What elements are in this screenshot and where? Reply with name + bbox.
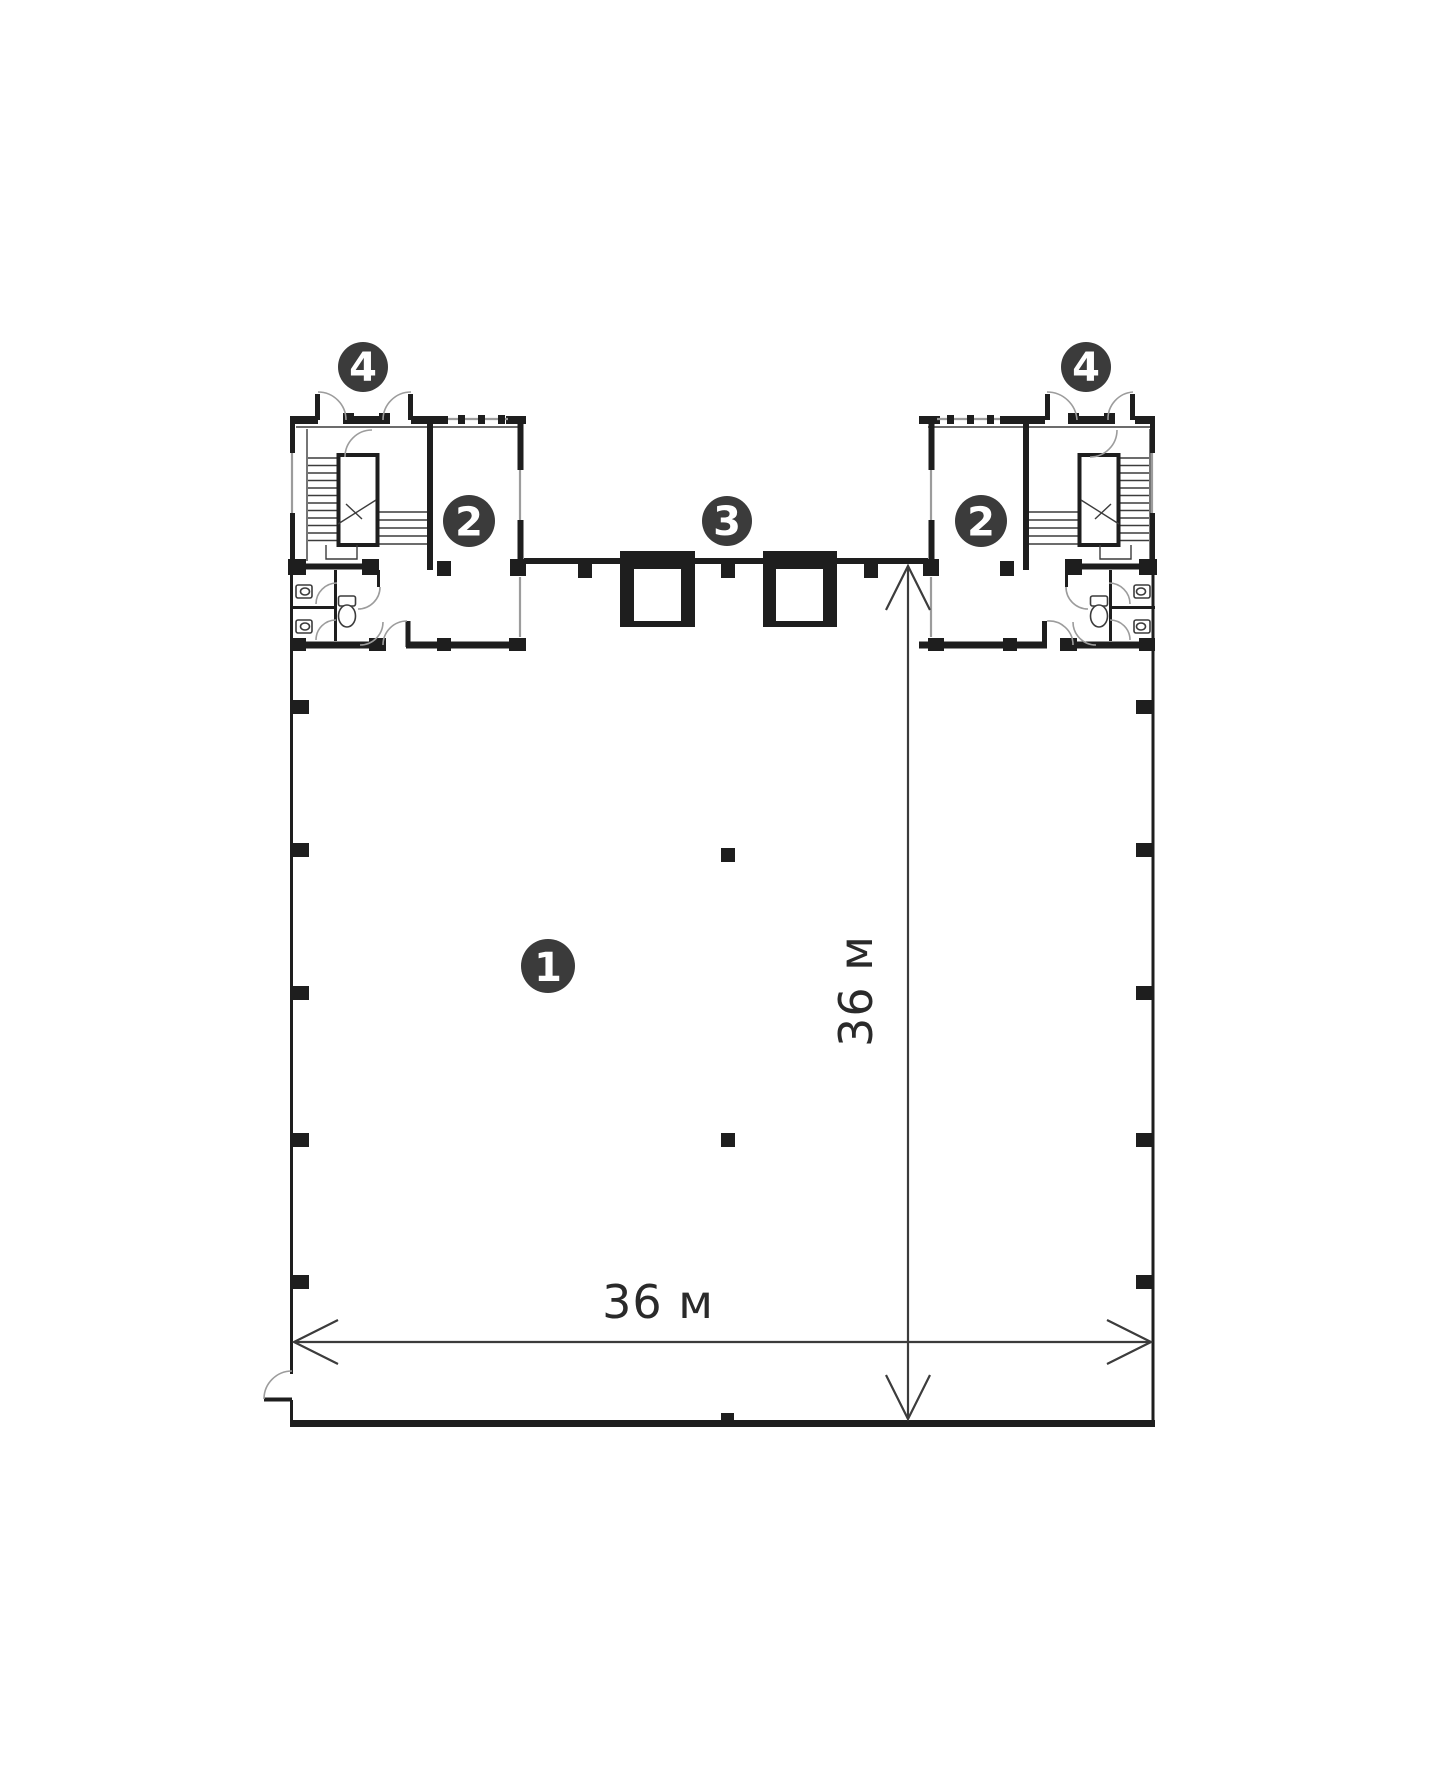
stair-door-swing-arc [345, 430, 372, 457]
room-badge-elevators: 3 [702, 496, 752, 546]
wall-column [1136, 1275, 1152, 1289]
wall-column [721, 563, 735, 578]
entry-door-swing-arc [318, 392, 411, 420]
room-badge-right-stair-number: 4 [1072, 345, 1100, 391]
sink-bowl [301, 588, 310, 595]
wall-column [293, 843, 309, 857]
right-stair-core [919, 392, 1157, 651]
room-badge-right-office-number: 2 [967, 499, 995, 545]
wall-column [509, 638, 526, 651]
interior-column [721, 848, 735, 862]
window-mullion [458, 415, 465, 424]
dimension-annotations: 36 м36 м [294, 566, 1151, 1419]
floor-plan-page: 36 м36 м 122344 [0, 0, 1440, 1776]
door-post [1104, 413, 1115, 424]
side-entry-door-swing-arc [264, 1371, 292, 1399]
room-badge-left-stair-number: 4 [349, 345, 377, 391]
dim-width-label: 36 м [602, 1275, 714, 1329]
wall-column [362, 559, 379, 575]
wall-column [1136, 1133, 1152, 1147]
dim-height-label: 36 м [829, 935, 883, 1047]
wall-column [293, 986, 309, 1000]
room-badge-left-office: 2 [443, 495, 495, 547]
wall-column [293, 700, 309, 714]
stair-treads [1119, 458, 1149, 541]
stair-treads-return [1029, 512, 1080, 544]
room-badge-right-office: 2 [955, 495, 1007, 547]
wall-column [578, 563, 592, 578]
room-badge-left-stair: 4 [338, 342, 388, 392]
sink-bowl [1137, 588, 1146, 595]
wall-column [1136, 700, 1152, 714]
toilet-bowl [339, 605, 356, 627]
sink-bowl [301, 623, 310, 630]
wall-column [1136, 843, 1152, 857]
dim-width: 36 м [294, 1275, 1151, 1364]
wall-column [293, 1133, 309, 1147]
window-mullion [987, 415, 994, 424]
wall-column [437, 638, 451, 651]
entry-door-swing-arc [1047, 392, 1133, 420]
elevator-bank [524, 551, 928, 627]
room-column [1000, 561, 1014, 576]
wall-column [928, 638, 944, 651]
stair-landing [1100, 545, 1131, 559]
door-post [343, 413, 354, 424]
window-mullion [967, 415, 974, 424]
wall-column [1060, 638, 1077, 651]
wall-column [864, 563, 878, 578]
room-number-badges: 122344 [338, 342, 1111, 993]
room-column [437, 561, 451, 576]
wall-corner-column [510, 559, 526, 576]
wall-column [721, 1413, 734, 1421]
room-badge-right-stair: 4 [1061, 342, 1111, 392]
wall-column [1136, 986, 1152, 1000]
room-badge-hall-number: 1 [534, 945, 562, 991]
left-stairwell [288, 424, 430, 575]
wall-column [293, 1275, 309, 1289]
sink-bowl [1137, 623, 1146, 630]
right-stairwell [1026, 424, 1157, 575]
stair-void [339, 455, 378, 545]
left-wc-area [290, 570, 380, 641]
hall-door-swing-arc [360, 621, 407, 645]
stair-door-swing-arc [1090, 430, 1117, 457]
stair-treads-return [377, 512, 428, 544]
window-mullion [947, 415, 954, 424]
room-badge-elevators-number: 3 [713, 499, 741, 545]
elevator-cab [776, 569, 823, 621]
stair-void [1080, 455, 1119, 545]
stair-landing [326, 545, 357, 559]
floor-plan: 36 м36 м 122344 [0, 0, 1440, 1776]
right-wc-area [1066, 570, 1155, 641]
door-post [379, 413, 390, 424]
window-mullion [498, 415, 505, 424]
stair-treads [308, 458, 338, 541]
elevator-cab [634, 569, 681, 621]
toilet-bowl [1091, 605, 1108, 627]
room-badge-hall: 1 [521, 939, 575, 993]
wall-corner-column [923, 559, 939, 576]
wall-column [1003, 638, 1017, 651]
window-mullion [478, 415, 485, 424]
room-badge-left-office-number: 2 [455, 499, 483, 545]
dim-height: 36 м [829, 566, 930, 1419]
interior-column [721, 1133, 735, 1147]
